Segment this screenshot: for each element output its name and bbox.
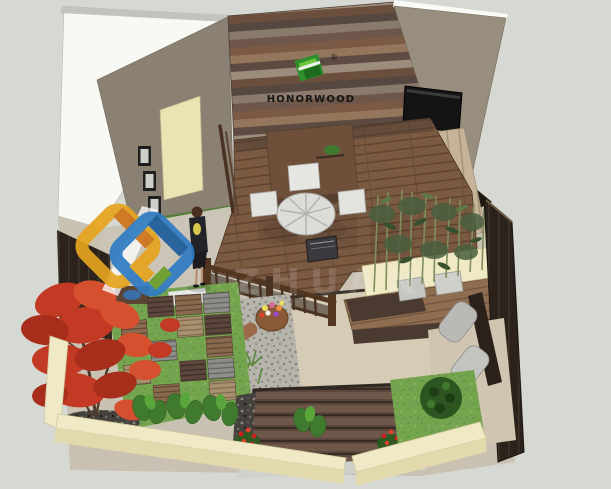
round-shrub [420, 377, 462, 419]
garden-render-canvas: ® HONORWOOD [0, 0, 611, 489]
garden-render-image: ® HONORWOOD [0, 0, 611, 489]
door [160, 96, 203, 200]
bonsai-plant [324, 145, 340, 155]
watermark-text: ZHUAN [234, 262, 426, 303]
registered-mark: ® [330, 53, 338, 62]
grill-cart [306, 236, 338, 262]
yellow-top [193, 223, 201, 235]
chair [288, 163, 320, 191]
head [192, 207, 203, 218]
chair [338, 189, 366, 215]
chair [250, 191, 278, 217]
brand-wordmark: HONORWOOD [267, 94, 356, 105]
